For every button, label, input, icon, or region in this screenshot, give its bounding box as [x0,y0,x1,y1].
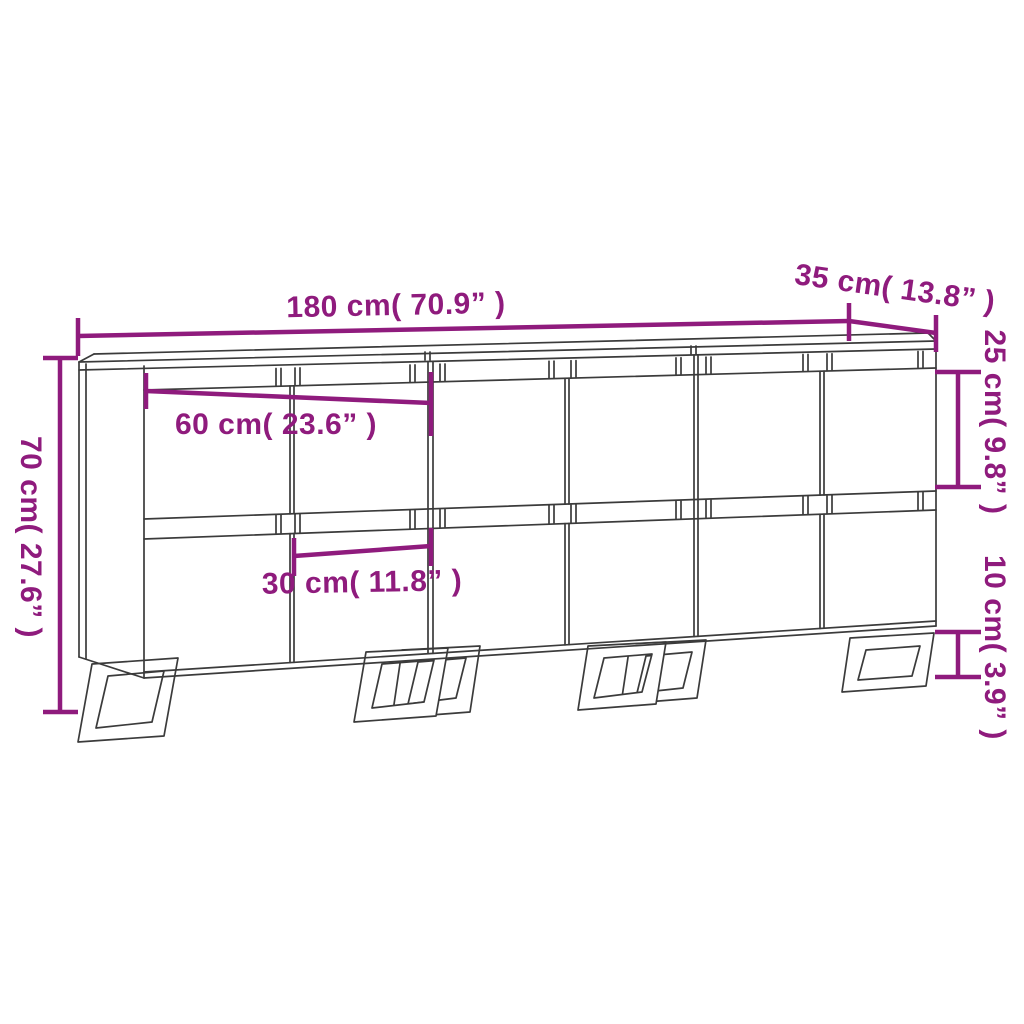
bottom-edge-outer [144,626,936,678]
dim-label-upper-door-height: 25 cm( 9.8” ) [979,322,1009,522]
front-face [144,349,936,678]
top-rail-bottom-edge [144,368,936,390]
dim-line-leg-height [935,632,981,677]
dim-label-leg-height: 10 cm( 3.9” ) [979,555,1009,735]
dim-label-unit-width: 60 cm( 23.6” ) [145,410,407,440]
dim-line-total-height [43,358,78,712]
dimension-diagram: 180 cm( 70.9” ) 35 cm( 13.8” ) 70 cm( 27… [0,0,1024,1024]
dim-label-door-width: 30 cm( 11.8” ) [232,566,492,601]
leg [578,642,666,710]
bottom-edge [144,621,936,672]
left-side-panel [79,362,144,678]
dim-label-total-height: 70 cm( 27.6” ) [15,359,45,715]
door-gaps-and-handle-slots [276,351,923,662]
sideboard-line-drawing [0,0,1024,1024]
leg [842,633,934,692]
dim-line-upper-door-height [935,372,981,487]
